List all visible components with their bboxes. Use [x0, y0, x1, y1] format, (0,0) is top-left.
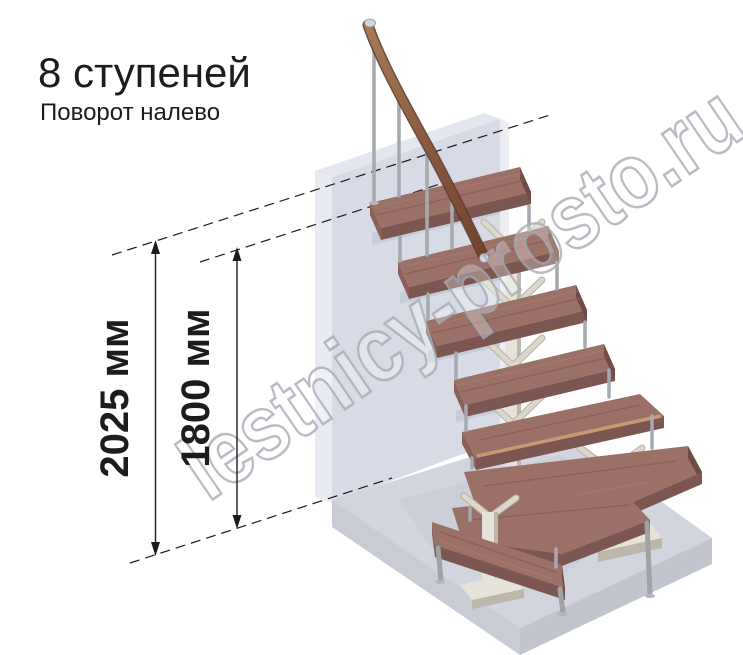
arrow-down-icon [151, 542, 160, 556]
arrow-up-icon [151, 240, 160, 254]
handrail-top-cap [365, 19, 376, 27]
dimension-2025-label: 2025 мм [93, 318, 137, 477]
arrow-up-icon [233, 247, 242, 261]
dimension-1800-label: 1800 мм [174, 308, 218, 467]
staircase-diagram-page: lestnicy-prosto.ru 8 ступеней Поворот на… [0, 0, 743, 655]
dimension-2025: 2025 мм [93, 240, 160, 556]
page-subtitle: Поворот налево [40, 99, 220, 126]
page-title: 8 ступеней [38, 49, 251, 96]
